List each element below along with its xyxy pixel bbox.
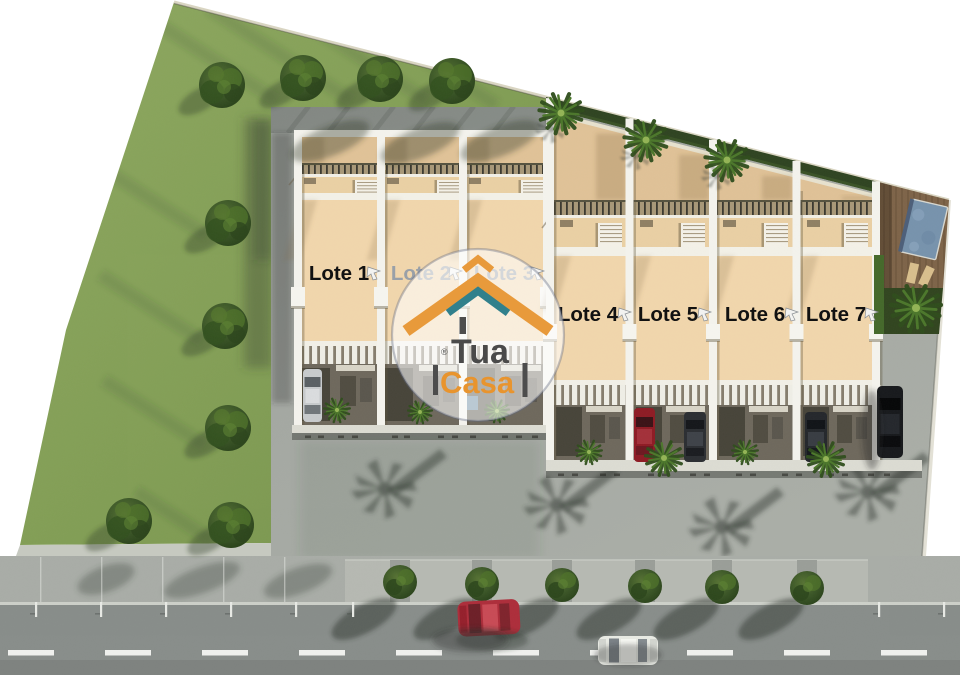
- svg-text:Lote 7: Lote 7: [806, 303, 866, 326]
- svg-text:Lote 4: Lote 4: [558, 303, 619, 326]
- svg-text:Casa: Casa: [440, 365, 515, 400]
- svg-text:®: ®: [441, 347, 448, 357]
- svg-text:Lote 1: Lote 1: [309, 262, 369, 285]
- svg-text:Lote 5: Lote 5: [638, 303, 698, 326]
- svg-text:Lote 6: Lote 6: [725, 303, 785, 326]
